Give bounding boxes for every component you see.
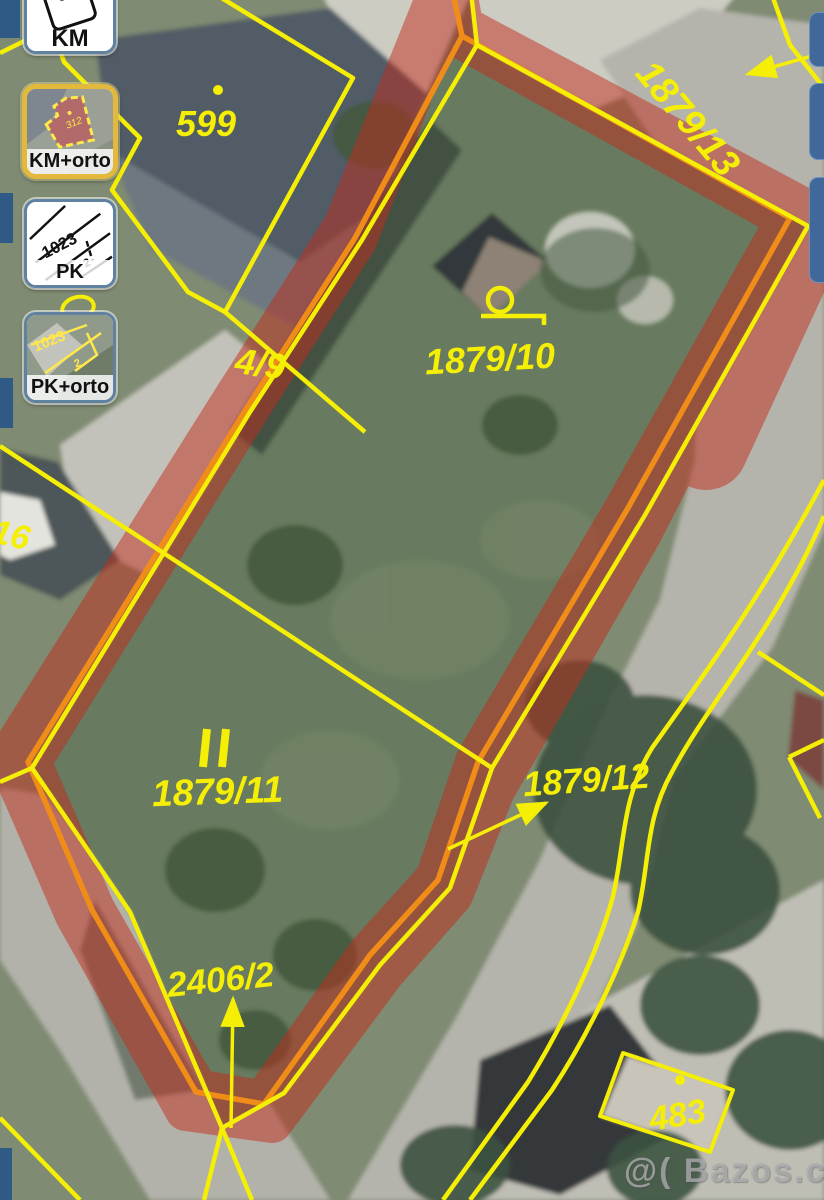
cadastral-map-screen: 599 1879/13 1879/10 1879/11 1879/12 2406… — [0, 0, 824, 1200]
layer-button-pk[interactable]: 1023 2 PK — [24, 199, 116, 288]
right-edge-tab[interactable] — [809, 177, 824, 283]
layer-button-pk-label: PK — [27, 260, 113, 285]
building-dot — [213, 85, 223, 95]
right-edge-tab[interactable] — [809, 83, 824, 160]
layer-button-km-orto[interactable]: 312 KM+orto — [22, 84, 118, 179]
layer-button-km-label: KM — [27, 26, 113, 51]
left-edge-fragment — [0, 0, 20, 38]
parcel-label-4-9: 4/9 — [232, 340, 288, 388]
building-dot — [675, 1075, 685, 1085]
bazos-watermark: @( Bazos.cz — [624, 1152, 824, 1191]
parcel-label-1879-10: 1879/10 — [424, 335, 556, 383]
left-edge-fragment — [0, 1148, 12, 1200]
layer-button-pk-orto-label: PK+orto — [27, 375, 113, 400]
right-edge-tab[interactable] — [809, 12, 824, 67]
layer-button-pk-orto[interactable]: 1023 2 PK+orto — [24, 312, 116, 403]
left-edge-fragment — [0, 193, 13, 243]
arrow-2406-2 — [231, 999, 233, 1128]
meadow-symbol-bar — [203, 729, 207, 767]
meadow-symbol-bar — [222, 729, 226, 767]
left-edge-fragment — [0, 378, 13, 428]
parcel-label-1879-11: 1879/11 — [151, 769, 283, 815]
map-canvas[interactable]: 599 1879/13 1879/10 1879/11 1879/12 2406… — [0, 0, 824, 1200]
parcel-label-599: 599 — [176, 103, 236, 144]
layer-button-km[interactable]: 300 KM — [24, 0, 116, 54]
layer-button-km-orto-label: KM+orto — [27, 149, 113, 174]
